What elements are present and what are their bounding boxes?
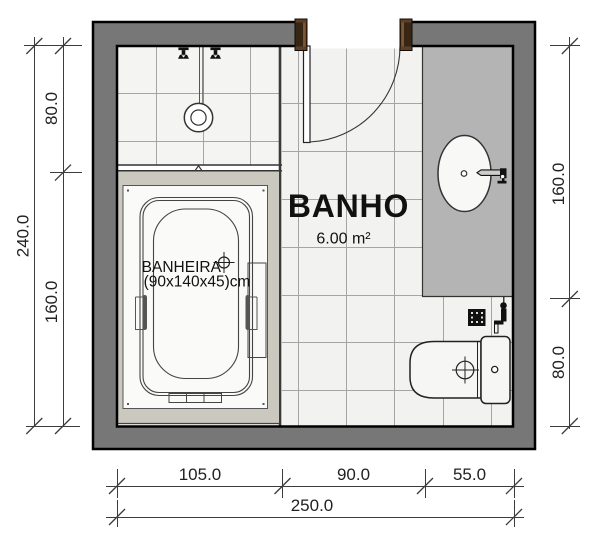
svg-text:BANHO: BANHO	[288, 188, 409, 224]
svg-text:80.0: 80.0	[549, 346, 568, 379]
svg-text:160.0: 160.0	[549, 163, 568, 206]
svg-text:160.0: 160.0	[42, 281, 61, 324]
svg-text:6.00 m²: 6.00 m²	[316, 231, 371, 248]
svg-text:250.0: 250.0	[291, 496, 334, 515]
svg-text:80.0: 80.0	[42, 92, 61, 125]
svg-text:(90x140x45)cm: (90x140x45)cm	[144, 274, 251, 291]
svg-text:105.0: 105.0	[179, 465, 222, 484]
svg-text:55.0: 55.0	[453, 465, 486, 484]
svg-text:240.0: 240.0	[13, 215, 32, 258]
svg-text:90.0: 90.0	[337, 465, 370, 484]
